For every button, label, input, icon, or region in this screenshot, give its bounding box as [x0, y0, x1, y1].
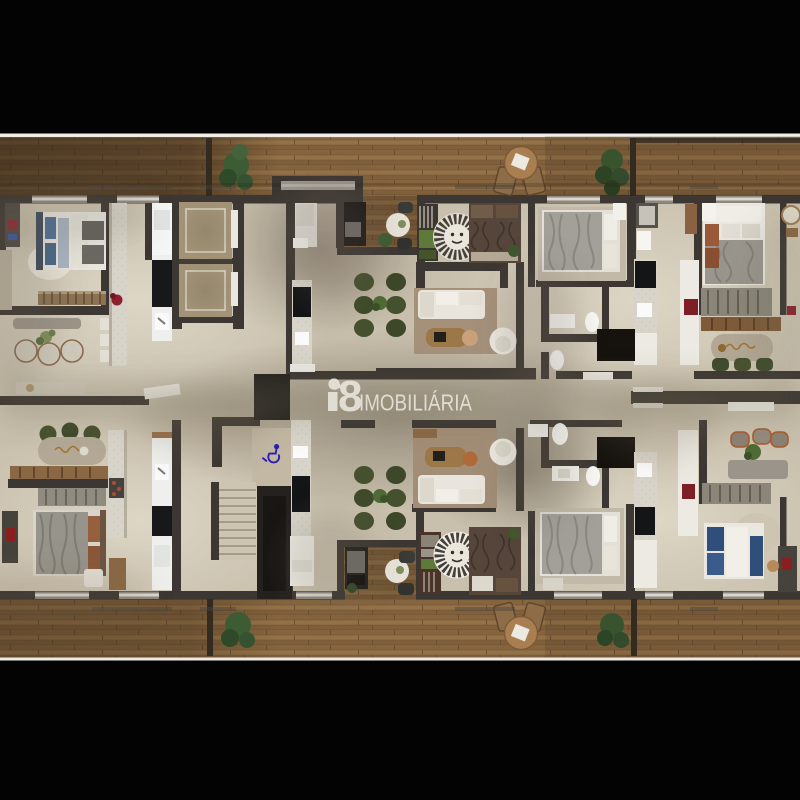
svg-text:IMOBILIÁRIA: IMOBILIÁRIA: [359, 390, 473, 416]
